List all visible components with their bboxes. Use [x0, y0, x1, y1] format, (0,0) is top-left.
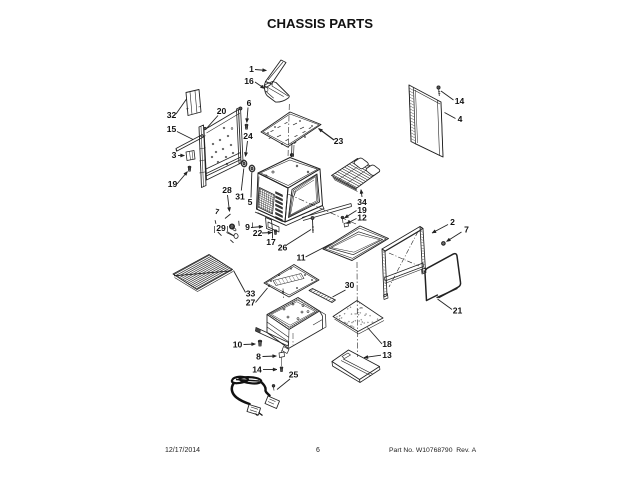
svg-text:14: 14 — [252, 365, 262, 375]
svg-text:7: 7 — [214, 207, 220, 217]
svg-text:8: 8 — [256, 352, 261, 362]
svg-text:18: 18 — [382, 339, 392, 349]
svg-text:21: 21 — [453, 306, 463, 316]
svg-text:26: 26 — [278, 243, 288, 253]
svg-text:32: 32 — [167, 110, 177, 120]
svg-text:6: 6 — [247, 98, 252, 108]
svg-text:11: 11 — [296, 253, 305, 263]
svg-text:16: 16 — [244, 76, 254, 86]
svg-text:14: 14 — [455, 96, 465, 106]
svg-text:17: 17 — [266, 237, 276, 247]
svg-text:15: 15 — [167, 124, 177, 134]
svg-text:24: 24 — [243, 131, 253, 141]
svg-text:12: 12 — [357, 213, 367, 223]
svg-text:25: 25 — [289, 370, 299, 380]
svg-text:2: 2 — [450, 217, 455, 227]
svg-text:22: 22 — [253, 228, 263, 238]
svg-text:31: 31 — [235, 192, 245, 202]
svg-text:27: 27 — [246, 298, 256, 308]
svg-text:20: 20 — [217, 106, 227, 116]
svg-text:9: 9 — [245, 222, 250, 232]
svg-text:29: 29 — [216, 223, 226, 233]
svg-text:5: 5 — [248, 197, 253, 207]
svg-text:4: 4 — [458, 114, 463, 124]
svg-text:28: 28 — [222, 185, 232, 195]
svg-text:23: 23 — [334, 136, 344, 146]
svg-text:13: 13 — [382, 350, 392, 360]
svg-text:1: 1 — [249, 64, 254, 74]
svg-text:19: 19 — [168, 179, 178, 189]
svg-text:10: 10 — [233, 340, 243, 350]
svg-text:7: 7 — [464, 225, 469, 235]
svg-text:30: 30 — [345, 280, 355, 290]
svg-text:3: 3 — [172, 150, 177, 160]
